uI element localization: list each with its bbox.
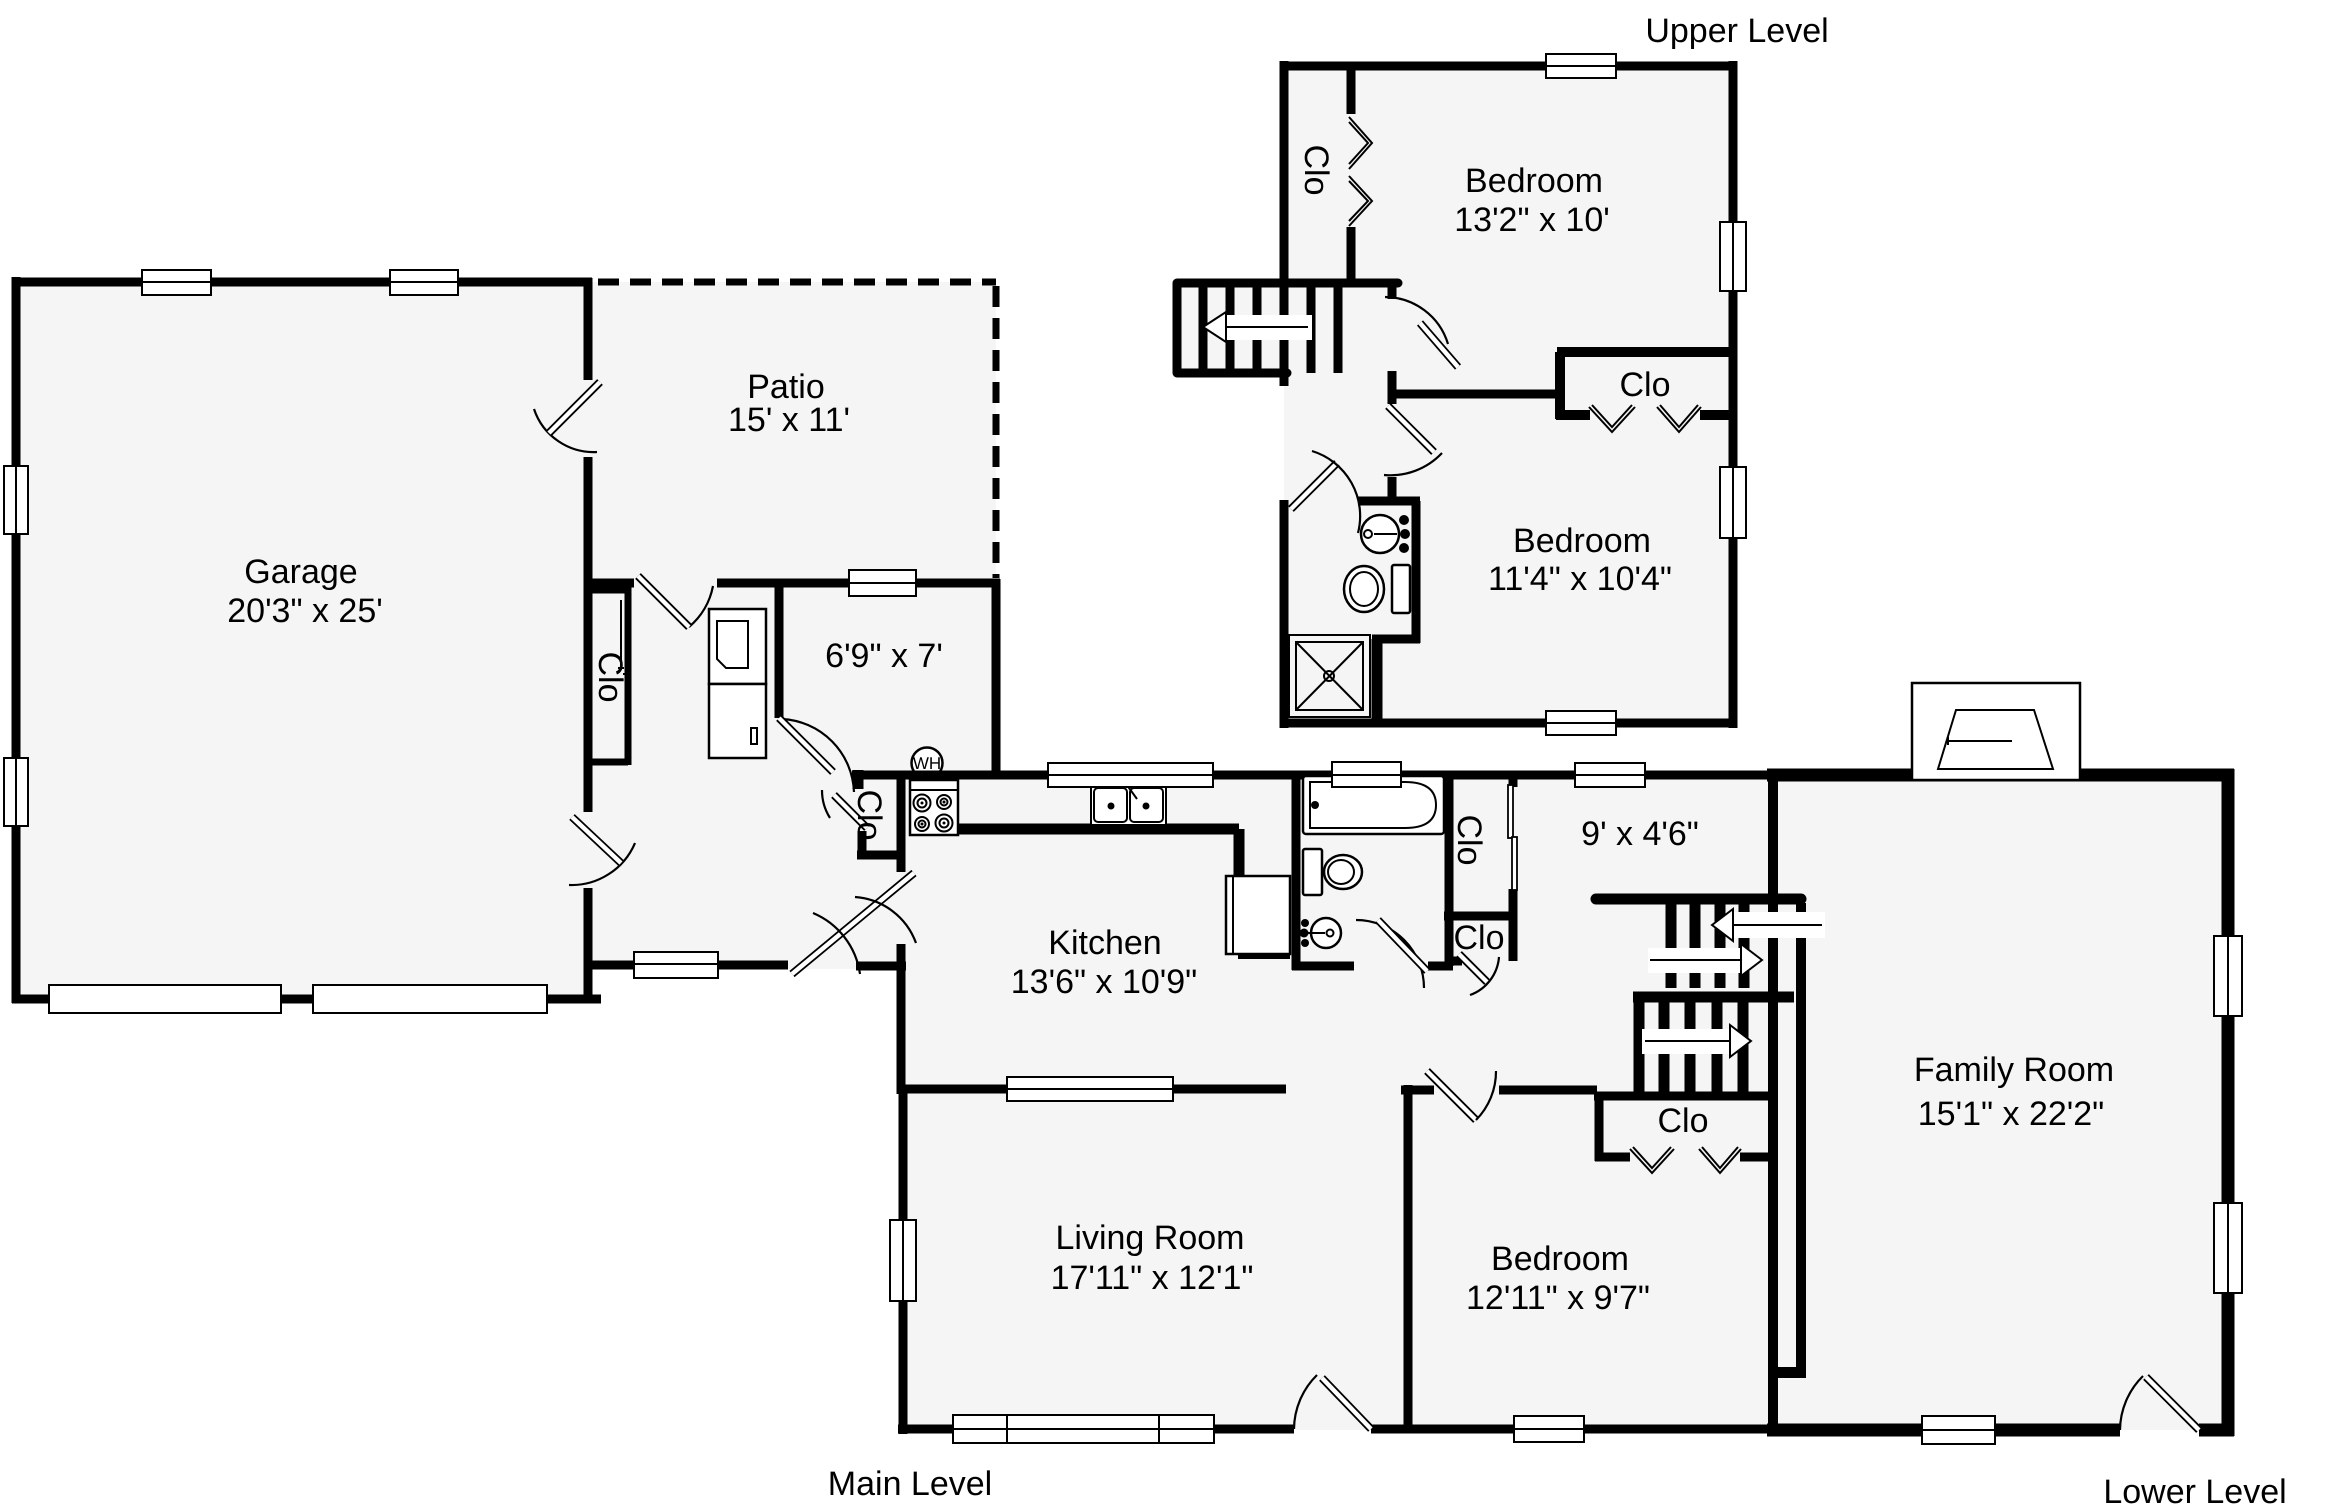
- svg-text:13'2" x 10': 13'2" x 10': [1454, 201, 1610, 239]
- svg-text:Lower Level: Lower Level: [2103, 1473, 2286, 1505]
- svg-text:WH: WH: [913, 754, 941, 773]
- svg-text:Upper Level: Upper Level: [1645, 12, 1828, 50]
- svg-text:Living Room: Living Room: [1056, 1219, 1245, 1257]
- svg-text:17'11" x 12'1": 17'11" x 12'1": [1051, 1259, 1254, 1297]
- svg-text:Garage: Garage: [244, 553, 357, 591]
- svg-text:Bedroom: Bedroom: [1513, 522, 1651, 560]
- svg-text:Clo: Clo: [1450, 814, 1488, 865]
- svg-text:Clo: Clo: [1657, 1102, 1708, 1140]
- svg-text:Main Level: Main Level: [828, 1465, 992, 1503]
- svg-text:Bedroom: Bedroom: [1491, 1240, 1629, 1278]
- svg-text:11'4" x 10'4": 11'4" x 10'4": [1488, 560, 1672, 598]
- svg-text:Clo: Clo: [1297, 144, 1335, 195]
- svg-text:Bedroom: Bedroom: [1465, 162, 1603, 200]
- svg-text:9' x 4'6": 9' x 4'6": [1581, 815, 1699, 853]
- svg-text:Family Room: Family Room: [1914, 1051, 2114, 1089]
- svg-text:20'3" x 25': 20'3" x 25': [227, 592, 383, 630]
- svg-text:Clo: Clo: [591, 651, 629, 702]
- svg-text:Kitchen: Kitchen: [1048, 924, 1161, 962]
- svg-text:13'6" x 10'9": 13'6" x 10'9": [1011, 963, 1197, 1001]
- svg-text:Clo: Clo: [850, 789, 888, 840]
- svg-text:15' x 11': 15' x 11': [728, 401, 850, 439]
- svg-text:Clo: Clo: [1619, 366, 1670, 404]
- svg-text:6'9" x 7': 6'9" x 7': [825, 637, 943, 675]
- svg-text:Clo: Clo: [1453, 919, 1504, 957]
- svg-text:12'11" x 9'7": 12'11" x 9'7": [1466, 1279, 1650, 1317]
- svg-text:15'1" x 22'2": 15'1" x 22'2": [1918, 1095, 2104, 1133]
